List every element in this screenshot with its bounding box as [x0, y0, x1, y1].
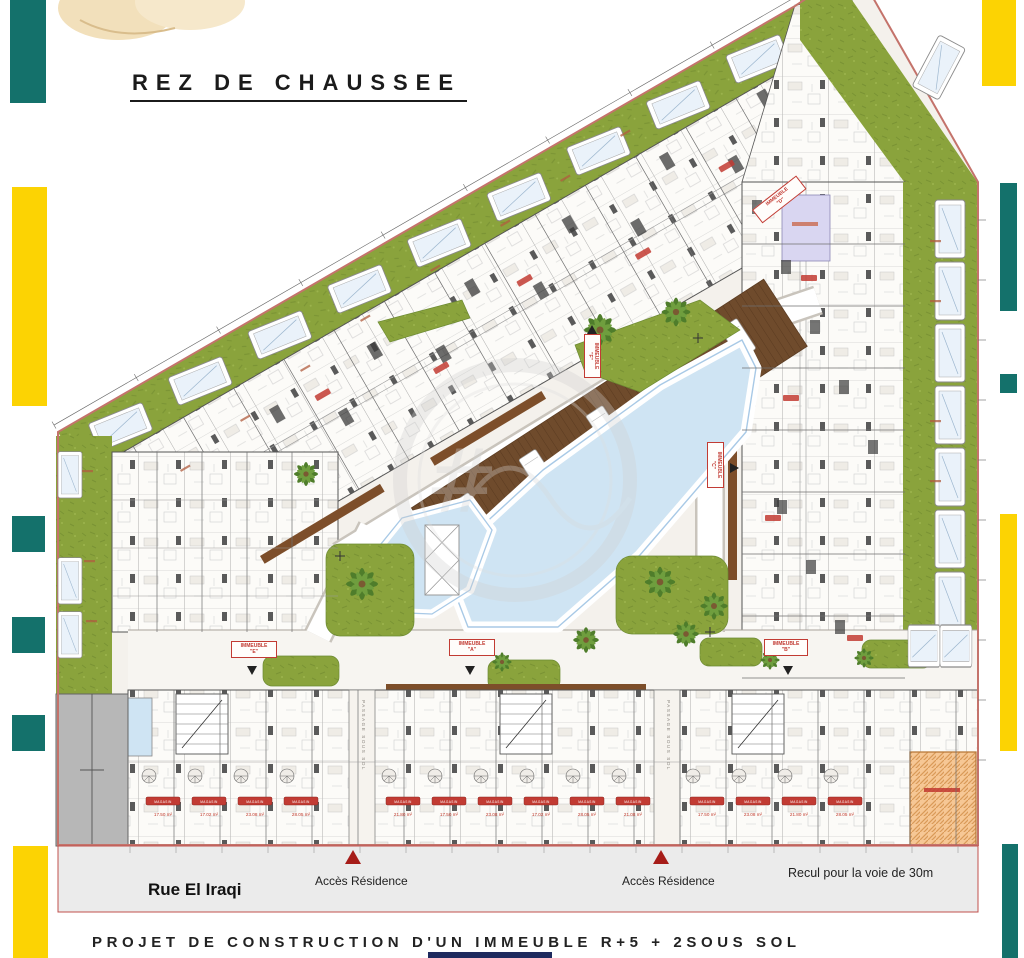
project-caption: PROJET DE CONSTRUCTION D'UN IMMEUBLE R+5… [92, 934, 801, 951]
concierge-room [782, 195, 830, 261]
shop-area-label: 28.05 m² [292, 812, 311, 817]
immeuble-label: IMMEUBLE"E" [231, 641, 277, 658]
parking-ramp [910, 752, 976, 846]
shop-area-label: 17.02 m² [532, 812, 551, 817]
palm-tree [492, 652, 511, 671]
svg-text:#: # [425, 430, 499, 533]
shop-area-label: 17.02 m² [200, 812, 219, 817]
access-arrow-right [653, 850, 669, 864]
site-plan-drawing: # MAGASIN17.50 m²MAGASIN17.02 m²MAGASIN2… [0, 0, 1024, 958]
palm-tree [346, 568, 378, 600]
immeuble-name: IMMEUBLE [716, 445, 722, 485]
shop-badge-label: MAGASIN [744, 800, 762, 804]
immeuble-letter: "C" [710, 445, 716, 485]
street-name: Rue El Iraqi [148, 880, 242, 900]
setback-note: Recul pour la voie de 30m [788, 866, 933, 880]
shop-area-label: 23.08 m² [486, 812, 505, 817]
shop-badge-label: MAGASIN [790, 800, 808, 804]
sheet-title: REZ DE CHAUSSEE [130, 70, 467, 102]
shop-badge-label: MAGASIN [532, 800, 550, 804]
immeuble-label: IMMEUBLE"B" [764, 639, 808, 656]
shop-area-label: 17.50 m² [698, 812, 717, 817]
shop-area-label: 21.80 m² [790, 812, 809, 817]
passage-sous-sol-label: PASSAGE SOUS SOL [361, 700, 366, 771]
shop-badge-label: MAGASIN [486, 800, 504, 804]
palm-tree [700, 592, 727, 619]
access-residence-right-label: Accès Résidence [622, 874, 715, 888]
shop-area-label: 21.08 m² [624, 812, 643, 817]
shop-badge-label: MAGASIN [624, 800, 642, 804]
shop-badge-label: MAGASIN [394, 800, 412, 804]
shop-area-label: 23.08 m² [246, 812, 265, 817]
access-arrow-left [345, 850, 361, 864]
shop-badge-label: MAGASIN [154, 800, 172, 804]
shop-badge-label: MAGASIN [698, 800, 716, 804]
palm-tree [573, 627, 599, 653]
palm-tree [854, 648, 873, 667]
lap-pool [128, 698, 152, 756]
bottom-navy-bar [428, 952, 552, 958]
immeuble-letter: "F" [587, 337, 593, 375]
shop-area-label: 28.05 m² [578, 812, 597, 817]
immeuble-label: IMMEUBLE"A" [449, 639, 495, 656]
palm-tree [673, 621, 699, 647]
passage-sous-sol-label: PASSAGE SOUS SOL [666, 700, 671, 771]
immeuble-letter: "B" [767, 647, 805, 653]
palm-tree [662, 298, 691, 327]
immeuble-letter: "A" [452, 647, 492, 653]
shop-badge-label: MAGASIN [200, 800, 218, 804]
palm-tree [294, 462, 318, 486]
shop-badge-label: MAGASIN [578, 800, 596, 804]
commercial-band [128, 690, 978, 846]
immeuble-name: IMMEUBLE [593, 337, 599, 375]
shop-area-label: 17.50 m² [154, 812, 173, 817]
shop-area-label: 21.80 m² [394, 812, 413, 817]
shop-area-label: 28.05 m² [836, 812, 855, 817]
immeuble-label: IMMEUBLE"C" [708, 442, 725, 488]
shop-area-label: 17.50 m² [440, 812, 459, 817]
shop-badge-label: MAGASIN [292, 800, 310, 804]
immeuble-letter: "E" [234, 649, 274, 655]
access-road [56, 694, 128, 846]
palm-tree [645, 567, 675, 597]
floor-plan-sheet: # MAGASIN17.50 m²MAGASIN17.02 m²MAGASIN2… [0, 0, 1024, 958]
access-residence-left-label: Accès Résidence [315, 874, 408, 888]
shop-badge-label: MAGASIN [440, 800, 458, 804]
logo-blob [58, 0, 245, 40]
shop-area-label: 23.08 m² [744, 812, 763, 817]
shop-badge-label: MAGASIN [836, 800, 854, 804]
shop-badge-label: MAGASIN [246, 800, 264, 804]
immeuble-label: IMMEUBLE"F" [585, 334, 602, 378]
